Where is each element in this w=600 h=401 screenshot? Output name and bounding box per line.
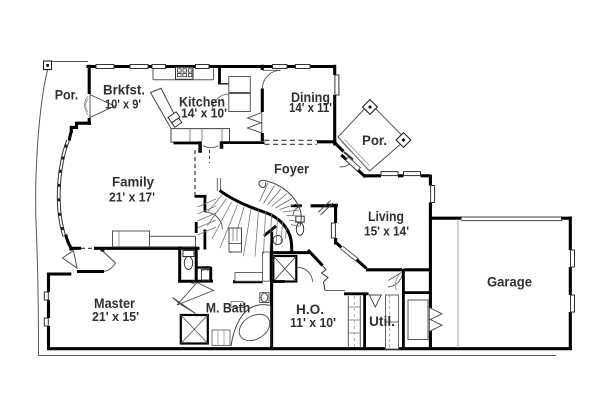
svg-text:Living: Living (368, 208, 404, 224)
svg-text:Family: Family (112, 174, 154, 190)
svg-text:14' x 11': 14' x 11' (289, 100, 332, 115)
svg-text:Garage: Garage (487, 274, 532, 290)
svg-text:14' x 10': 14' x 10' (181, 106, 227, 121)
svg-text:Brkfst.: Brkfst. (103, 82, 145, 98)
svg-text:Util.: Util. (369, 313, 395, 329)
svg-text:21' x 15': 21' x 15' (92, 309, 139, 324)
svg-text:21' x 17': 21' x 17' (109, 190, 155, 205)
svg-text:11' x 10': 11' x 10' (290, 315, 336, 330)
svg-text:Por.: Por. (55, 87, 79, 103)
svg-text:10' x 9': 10' x 9' (105, 97, 141, 112)
svg-text:Por.: Por. (362, 132, 387, 148)
svg-text:Foyer: Foyer (274, 161, 310, 177)
svg-text:15' x 14': 15' x 14' (364, 224, 409, 239)
svg-text:M. Bath: M. Bath (206, 300, 251, 316)
